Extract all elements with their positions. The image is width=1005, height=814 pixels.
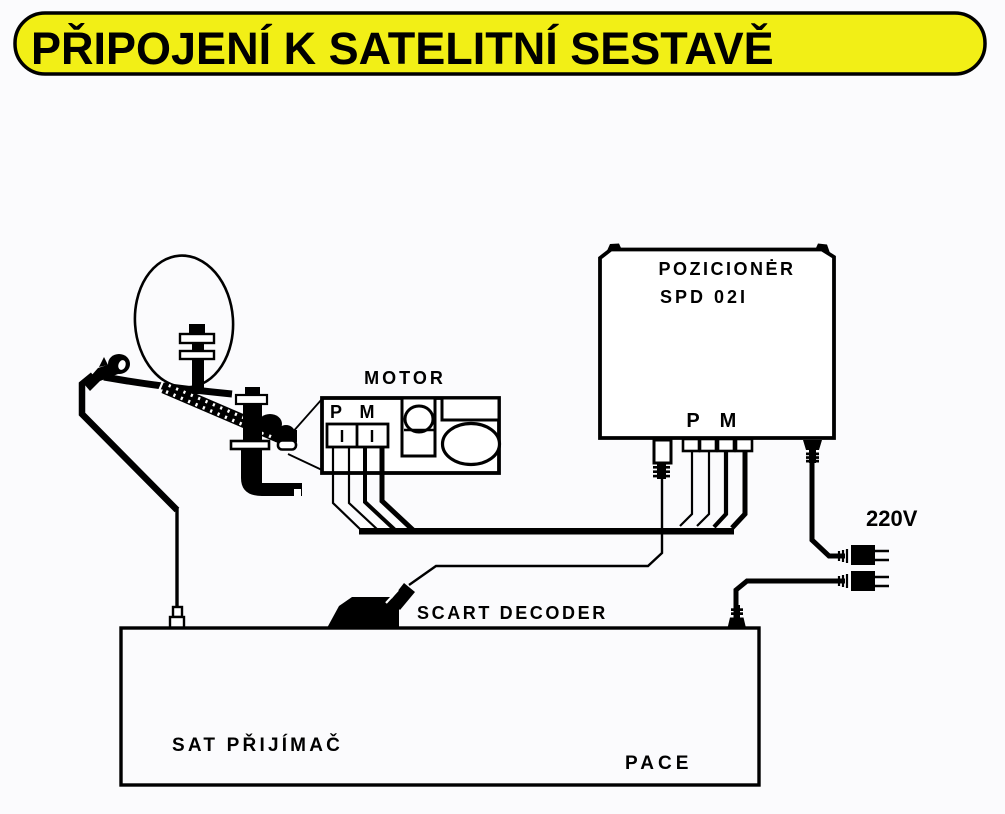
svg-text:SCART DECODER: SCART DECODER	[417, 603, 608, 623]
svg-text:P: P	[330, 402, 342, 422]
svg-text:P: P	[686, 410, 699, 432]
svg-text:PŘIPOJENÍ K SATELITNÍ SESTAVĚ: PŘIPOJENÍ K SATELITNÍ SESTAVĚ	[31, 23, 774, 74]
svg-text:M: M	[360, 402, 375, 422]
svg-text:SAT PŘIJÍMAČ: SAT PŘIJÍMAČ	[172, 734, 343, 756]
svg-text:PACE: PACE	[625, 753, 692, 774]
svg-text:SPD 02I: SPD 02I	[660, 287, 748, 307]
svg-text:220V: 220V	[866, 506, 918, 531]
svg-text:MOTOR: MOTOR	[364, 368, 446, 388]
svg-text:M: M	[720, 410, 737, 432]
svg-text:POZICIONĖR: POZICIONĖR	[658, 259, 795, 279]
